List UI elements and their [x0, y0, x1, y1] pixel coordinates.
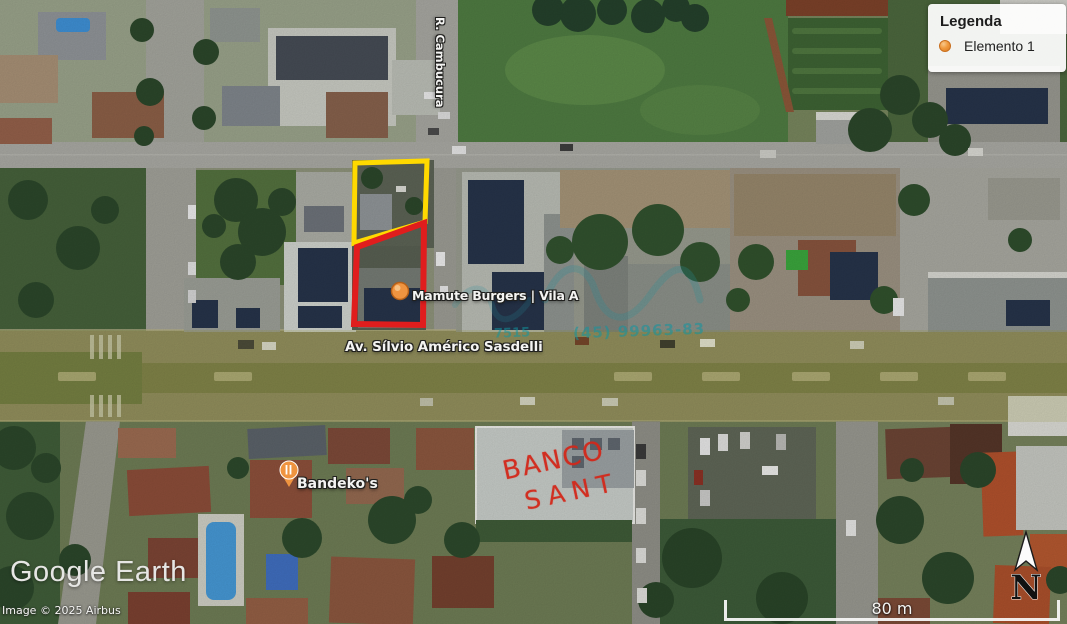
- google-earth-logo: Google Earth: [10, 556, 187, 589]
- legend-item[interactable]: Elemento 1: [939, 38, 1066, 54]
- legend-panel: Legenda Elemento 1: [928, 4, 1066, 72]
- watermark-fragment-left: 7515: [494, 325, 531, 341]
- legend-title: Legenda: [940, 13, 1066, 30]
- imagery-copyright: Image © 2025 Airbus: [2, 604, 121, 617]
- street-label-avenue: Av. Sílvio Américo Sasdelli: [345, 339, 543, 355]
- mamute-marker-icon[interactable]: [392, 283, 409, 300]
- satellite-imagery: N: [0, 0, 1067, 624]
- poi-label-bandekos: Bandeko's: [297, 476, 378, 492]
- orange-marker-icon: [939, 40, 951, 52]
- scale-bar-label: 80 m: [727, 600, 1057, 617]
- poi-label-mamute: Mamute Burgers | Vila A: [412, 288, 578, 303]
- map-viewport[interactable]: N Mamute Burgers | Vila A Bandeko's Av. …: [0, 0, 1067, 624]
- scale-bar: 80 m: [724, 600, 1060, 621]
- legend-item-label: Elemento 1: [964, 38, 1035, 54]
- photo-grain-overlay: [0, 0, 1067, 624]
- street-label-cambucura: R. Cambucura: [433, 17, 447, 107]
